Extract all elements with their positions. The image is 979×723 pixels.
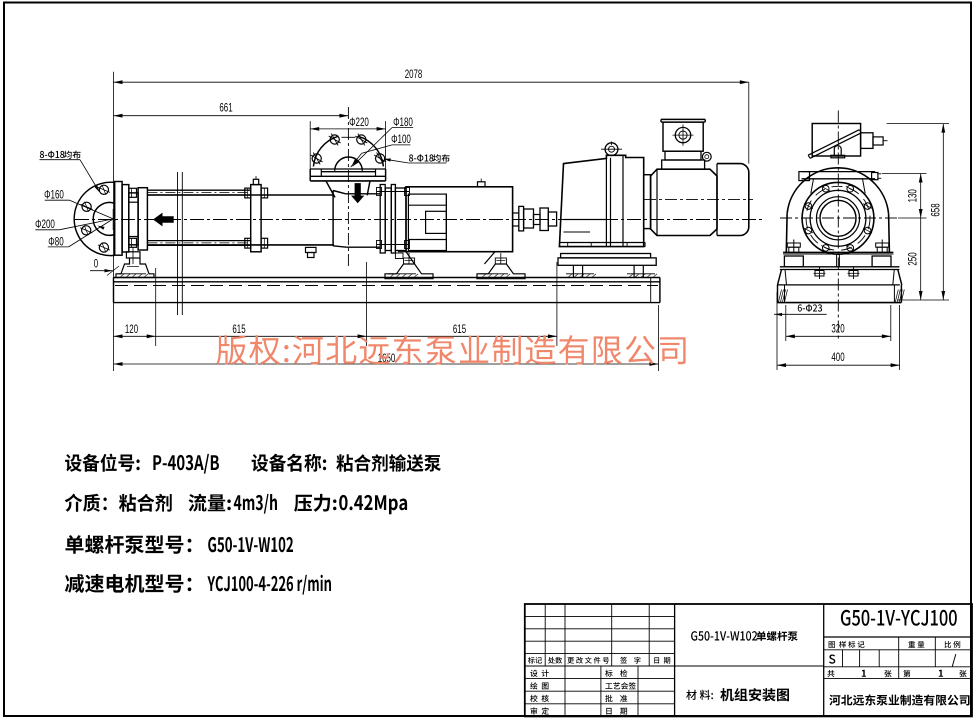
svg-text:0: 0: [94, 259, 98, 271]
svg-text:120: 120: [125, 324, 138, 336]
svg-text:658: 658: [930, 203, 942, 216]
svg-text:615: 615: [453, 324, 466, 336]
svg-text:Φ200: Φ200: [35, 219, 55, 231]
svg-text:Φ180: Φ180: [393, 117, 413, 129]
svg-text:Φ100: Φ100: [391, 134, 411, 146]
svg-text:Φ220: Φ220: [349, 117, 369, 129]
svg-text:615: 615: [232, 324, 245, 336]
svg-text:2078: 2078: [405, 69, 423, 81]
svg-text:130: 130: [908, 189, 920, 202]
svg-text:250: 250: [908, 252, 920, 265]
svg-text:400: 400: [831, 352, 844, 364]
svg-text:661: 661: [219, 103, 232, 115]
svg-text:Φ160: Φ160: [44, 190, 64, 202]
svg-text:320: 320: [831, 323, 844, 335]
